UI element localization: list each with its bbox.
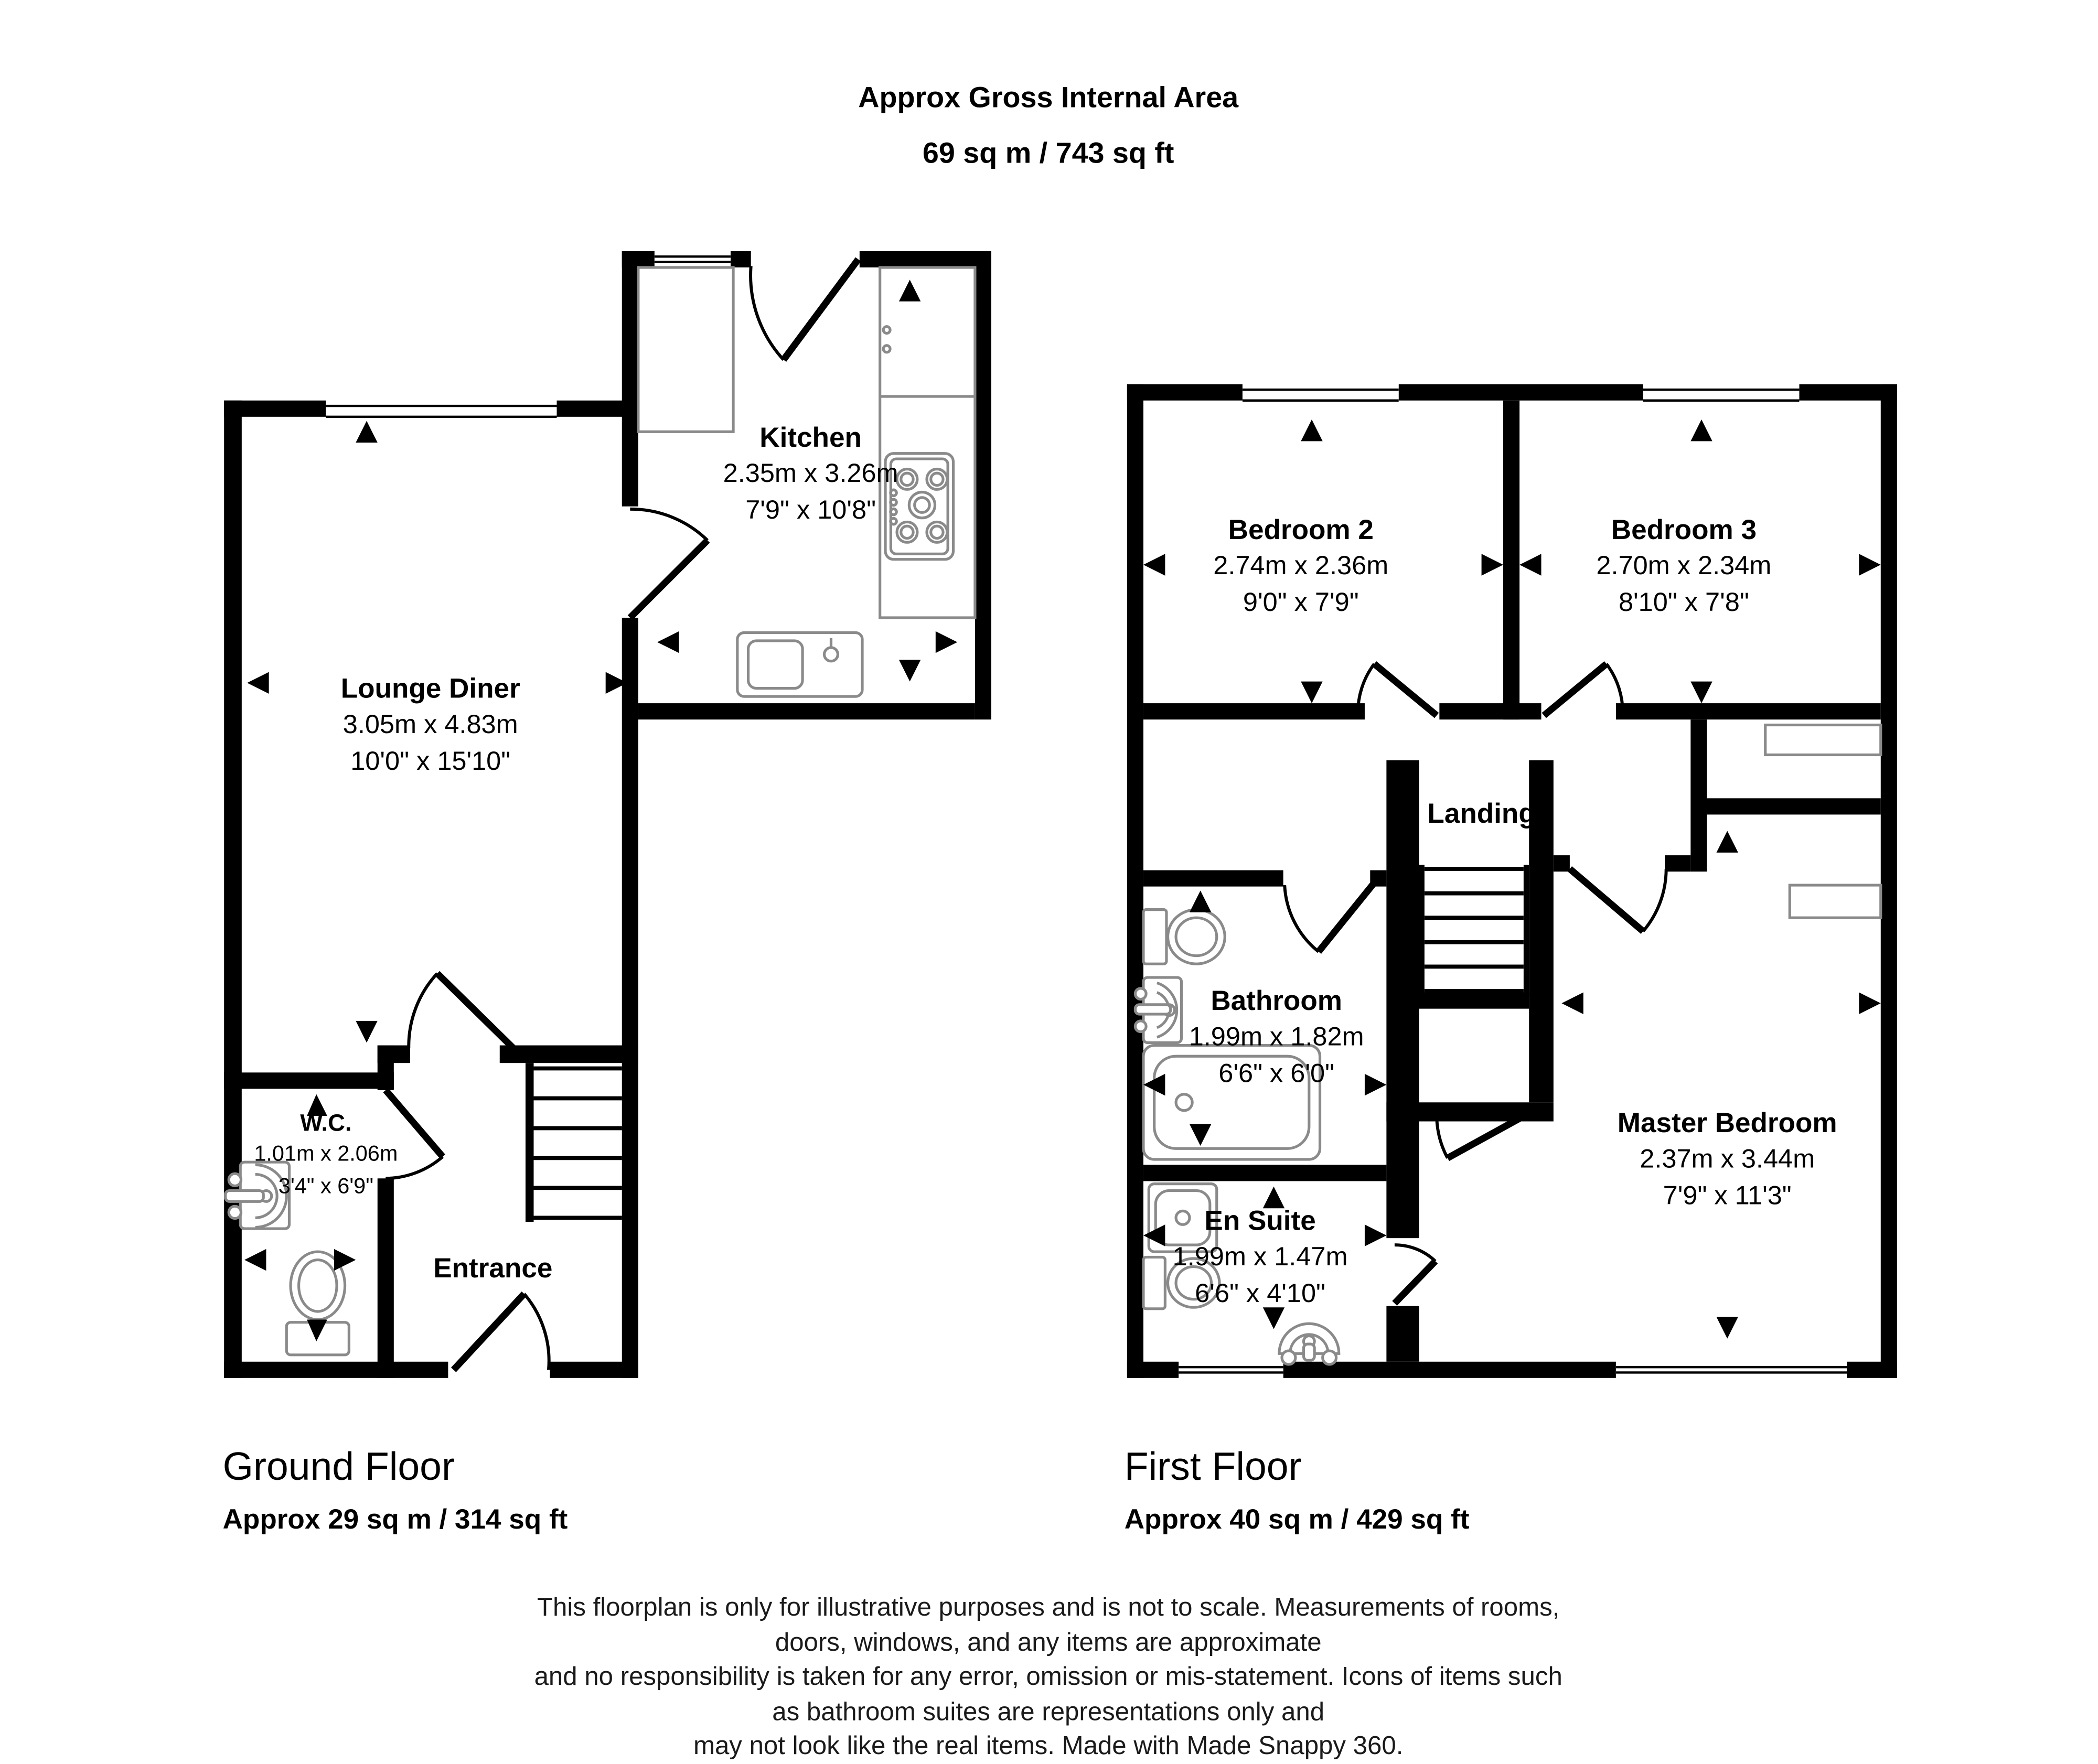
room-label-bedroom3: Bedroom 3 2.70m x 2.34m 8'10" x 7'8" — [1596, 512, 1771, 622]
first-floor-title: First Floor — [1125, 1445, 1470, 1491]
room-label-bedroom2: Bedroom 2 2.74m x 2.36m 9'0" x 7'9" — [1213, 512, 1388, 622]
bathroom-basin-icon — [1135, 977, 1181, 1042]
ensuite-window-icon — [1179, 1362, 1283, 1378]
cupboard-icon — [1765, 725, 1881, 918]
first-stairs-icon — [1419, 865, 1529, 996]
bedroom3-window-icon — [1643, 384, 1800, 401]
room-label-lounge-diner: Lounge Diner 3.05m x 4.83m 10'0" x 15'10… — [341, 671, 520, 781]
room-label-bathroom: Bathroom 1.99m x 1.82m 6'6" x 6'0" — [1189, 983, 1364, 1093]
ensuite-door-arc-icon — [1395, 1245, 1436, 1303]
header-line2: 69 sq m / 743 sq ft — [858, 126, 1238, 182]
first-floor-caption: First Floor Approx 40 sq m / 429 sq ft — [1125, 1445, 1470, 1541]
room-label-ensuite: En Suite 1.99m x 1.47m 6'6" x 4'10" — [1173, 1203, 1348, 1313]
ensuite-basin-icon — [1279, 1324, 1339, 1364]
disclaimer-line1: This floorplan is only for illustrative … — [523, 1591, 1573, 1660]
ground-floor-title: Ground Floor — [223, 1445, 568, 1491]
kitchen-door-arc-icon — [751, 259, 858, 360]
header-line1: Approx Gross Internal Area — [858, 71, 1238, 126]
front-door-arc-icon — [454, 1294, 549, 1370]
ground-floor-area: Approx 29 sq m / 314 sq ft — [223, 1500, 568, 1541]
lounge-kitchen-door-arc-icon — [630, 509, 708, 618]
kitchen-window-icon — [655, 251, 731, 267]
disclaimer-line2: and no responsibility is taken for any e… — [523, 1660, 1573, 1729]
room-label-kitchen: Kitchen 2.35m x 3.26m 7'9" x 10'8" — [723, 420, 898, 530]
master-window-icon — [1616, 1362, 1847, 1378]
lounge-hall-door-arc-icon — [409, 973, 513, 1048]
room-label-entrance: Entrance — [433, 1250, 552, 1287]
room-label-landing: Landing — [1427, 795, 1535, 832]
bedroom2-door-arc-icon — [1358, 664, 1437, 715]
bathroom-door-arc-icon — [1285, 881, 1375, 952]
bedroom2-window-icon — [1243, 384, 1399, 401]
disclaimer: This floorplan is only for illustrative … — [523, 1591, 1573, 1764]
bathroom-toilet-icon — [1143, 910, 1225, 964]
bedroom3-door-arc-icon — [1544, 664, 1623, 715]
ground-stairs-icon — [526, 1063, 622, 1222]
ground-floor-caption: Ground Floor Approx 29 sq m / 314 sq ft — [223, 1445, 568, 1541]
first-floor-area: Approx 40 sq m / 429 sq ft — [1125, 1500, 1470, 1541]
lounge-window-icon — [326, 401, 556, 417]
room-label-master-bedroom: Master Bedroom 2.37m x 3.44m 7'9" x 11'3… — [1618, 1105, 1837, 1215]
gross-internal-area-header: Approx Gross Internal Area 69 sq m / 743… — [858, 71, 1238, 182]
kitchen-sink-icon — [737, 632, 862, 696]
room-label-wc: W.C. 1.01m x 2.06m 3'4" x 6'9" — [254, 1106, 398, 1204]
master-door-arc-icon — [1570, 869, 1666, 931]
disclaimer-line3: may not look like the real items. Made w… — [523, 1729, 1573, 1764]
floorplan-page: Approx Gross Internal Area 69 sq m / 743… — [0, 0, 2098, 1706]
